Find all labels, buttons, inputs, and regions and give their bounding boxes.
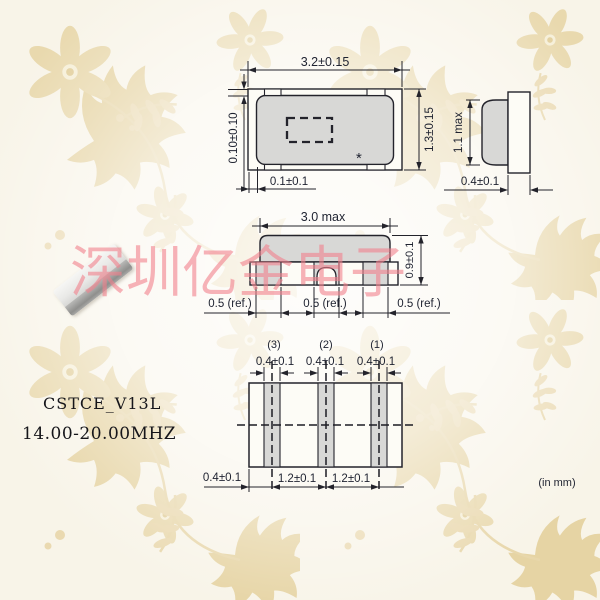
dim-top-height: 1.3±0.15 <box>424 107 436 152</box>
dim-edge-to-center: 0.4±0.1 <box>203 472 241 484</box>
product-frequency: 14.00-20.00MHZ <box>22 424 176 444</box>
dim-pad2-width: 0.4±0.1 <box>306 356 344 368</box>
top-view <box>248 89 402 170</box>
dim-front-pad-right: 0.5 (ref.) <box>397 298 441 310</box>
dim-front-pad-left: 0.5 (ref.) <box>208 298 252 310</box>
side-view <box>482 92 530 173</box>
dim-top-width: 3.2±0.15 <box>301 55 350 69</box>
front-view <box>250 236 398 286</box>
dim-pad1-width: 0.4±0.1 <box>357 356 395 368</box>
dim-front-pad-center: 0.5 (ref.) <box>303 298 347 310</box>
pin3-label: (3) <box>267 339 280 351</box>
units-note: (in mm) <box>538 477 575 489</box>
product-model: CSTCE_V13L <box>43 394 161 413</box>
pin1-label: (1) <box>370 339 383 351</box>
dim-side-height: 1.1 max <box>453 112 465 153</box>
dim-offset-top: 0.10±0.10 <box>228 112 240 163</box>
dim-front-height: 0.9±0.1 <box>404 242 416 279</box>
dim-front-width: 3.0 max <box>301 210 346 224</box>
dim-side-height-lines <box>466 100 480 165</box>
pin2-label: (2) <box>319 339 332 351</box>
component-photo <box>50 244 136 316</box>
polarity-mark: * <box>356 150 362 167</box>
dim-side-terminal: 0.4±0.1 <box>461 176 499 188</box>
center-terminal-notch <box>317 268 336 286</box>
resonator-dimension-drawing: * 3.2±0.15 1.3±0.15 0.10±0.10 <box>0 0 600 600</box>
dim-pitch-left: 1.2±0.1 <box>278 473 316 485</box>
dim-pitch-right: 1.2±0.1 <box>332 473 370 485</box>
dim-top-height-lines <box>404 89 426 170</box>
dim-pad3-width: 0.4±0.1 <box>256 356 294 368</box>
component-photo-body <box>52 243 133 316</box>
dim-offset-bottom: 0.1±0.1 <box>270 176 308 188</box>
